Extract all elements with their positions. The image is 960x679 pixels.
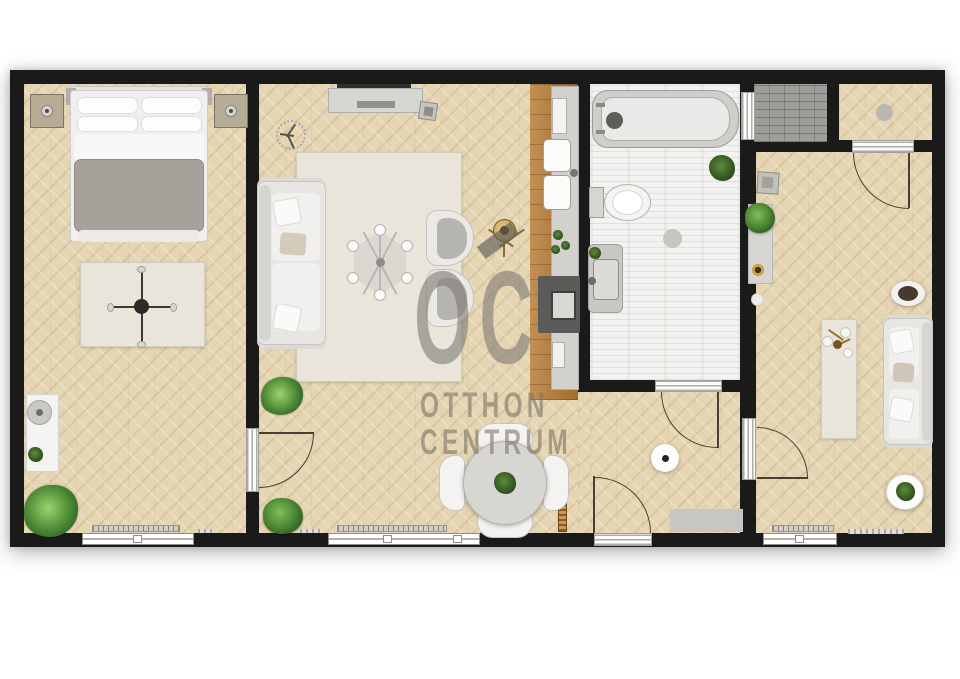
ceiling-light-arm — [141, 313, 143, 342]
ceiling-lamp — [876, 104, 893, 121]
bathroom-door-leaf — [717, 392, 719, 448]
window-mullion — [383, 535, 392, 543]
sink-basin — [543, 139, 571, 172]
bathroom-door-frame — [655, 380, 722, 392]
floor-vent — [300, 529, 322, 533]
potted-plant — [28, 447, 43, 462]
decor-bowl-inner — [898, 286, 918, 301]
bed-foot — [79, 230, 199, 242]
tv-console-shelf — [357, 101, 395, 108]
armchair-seat — [437, 218, 467, 259]
pendant-bulb — [822, 336, 833, 347]
window-mullion — [453, 535, 462, 543]
side-table-plant — [896, 482, 915, 501]
fridge — [552, 98, 567, 134]
counter-plant — [561, 241, 570, 250]
chandelier-bulb — [374, 224, 386, 236]
window-mullion — [133, 535, 142, 543]
chandelier-bulb — [347, 240, 359, 252]
ceiling-light-bulb — [137, 266, 146, 273]
sink-basin — [543, 175, 571, 210]
bed-sheet — [74, 134, 204, 161]
gold-bowl — [752, 264, 764, 276]
counter-plant — [551, 245, 560, 254]
living-radiator — [337, 525, 447, 532]
nightstand-lamp-dot — [45, 109, 49, 113]
floor-vent — [198, 529, 214, 533]
sofa-pillow — [272, 197, 302, 227]
ceiling-light-bulb — [137, 341, 146, 348]
vanity-stool-dot — [36, 409, 43, 416]
ceiling-light-hub — [134, 299, 149, 314]
chandelier-bulb — [347, 272, 359, 284]
sofa-pillow — [888, 328, 915, 355]
doormat — [670, 509, 743, 532]
console-plant — [745, 203, 775, 233]
pendant-bulb — [843, 348, 853, 358]
ceiling-light-bulb — [170, 303, 177, 312]
armchair-seat — [437, 278, 467, 320]
bed-pillow — [77, 116, 138, 132]
chandelier-hub — [376, 258, 385, 267]
chandelier-bulb — [401, 240, 413, 252]
bedroom-door-frame — [246, 428, 259, 492]
entry-door-frame — [594, 533, 652, 546]
sofa-pillow — [272, 303, 303, 334]
wall-speaker-inner — [423, 106, 433, 116]
storage-door-frame — [741, 92, 755, 140]
table-plant — [494, 472, 516, 494]
oven-door — [551, 291, 576, 320]
bed-duvet — [74, 159, 204, 232]
toilet-tank — [589, 187, 604, 218]
storage-room-floor — [754, 84, 827, 142]
chandelier-bulb — [401, 272, 413, 284]
tub-faucet — [606, 112, 623, 129]
chandelier-bulb — [374, 289, 386, 301]
sink-faucet — [570, 169, 578, 177]
tub-handle — [596, 130, 605, 134]
entry-nook-door-frame — [852, 140, 914, 153]
floor-lamp-dot — [500, 226, 509, 235]
right-room-radiator — [772, 525, 834, 532]
wall-unit-inner — [762, 177, 774, 189]
floor-plan — [0, 0, 960, 679]
pendant-hub — [833, 340, 842, 349]
bedroom-radiator — [92, 525, 180, 532]
vanity-faucet — [588, 277, 596, 285]
ceiling-light-bulb — [107, 303, 114, 312]
floor-lamp-leg — [503, 242, 505, 257]
nightstand-lamp-dot — [229, 109, 233, 113]
dining-chair — [439, 455, 465, 511]
white-vase — [751, 293, 764, 306]
floor-drain — [663, 229, 682, 248]
dishwasher — [552, 342, 565, 368]
ceiling-light-arm — [141, 272, 143, 301]
sofa-back — [922, 322, 932, 441]
bed-pillow — [77, 97, 138, 114]
tub-handle — [596, 103, 605, 107]
hall-door-frame — [742, 418, 756, 480]
bathroom-plant — [709, 155, 735, 181]
window-mullion — [795, 535, 804, 543]
floor-vent — [848, 529, 904, 534]
pendant-bulb — [840, 327, 851, 338]
sofa-pillow — [279, 232, 306, 256]
plant — [263, 498, 303, 534]
sofa-pillow — [888, 396, 915, 423]
bed-pillow — [141, 116, 202, 132]
sofa-back — [259, 185, 271, 341]
sofa-pillow — [893, 362, 915, 382]
bed-pillow — [141, 97, 202, 114]
counter-plant — [553, 230, 563, 240]
hall-lamp-dot — [662, 455, 669, 462]
wall-gap-floor — [578, 392, 590, 533]
vanity-basin — [593, 259, 619, 300]
vanity-plant — [589, 247, 601, 259]
toilet-seat — [612, 190, 643, 215]
